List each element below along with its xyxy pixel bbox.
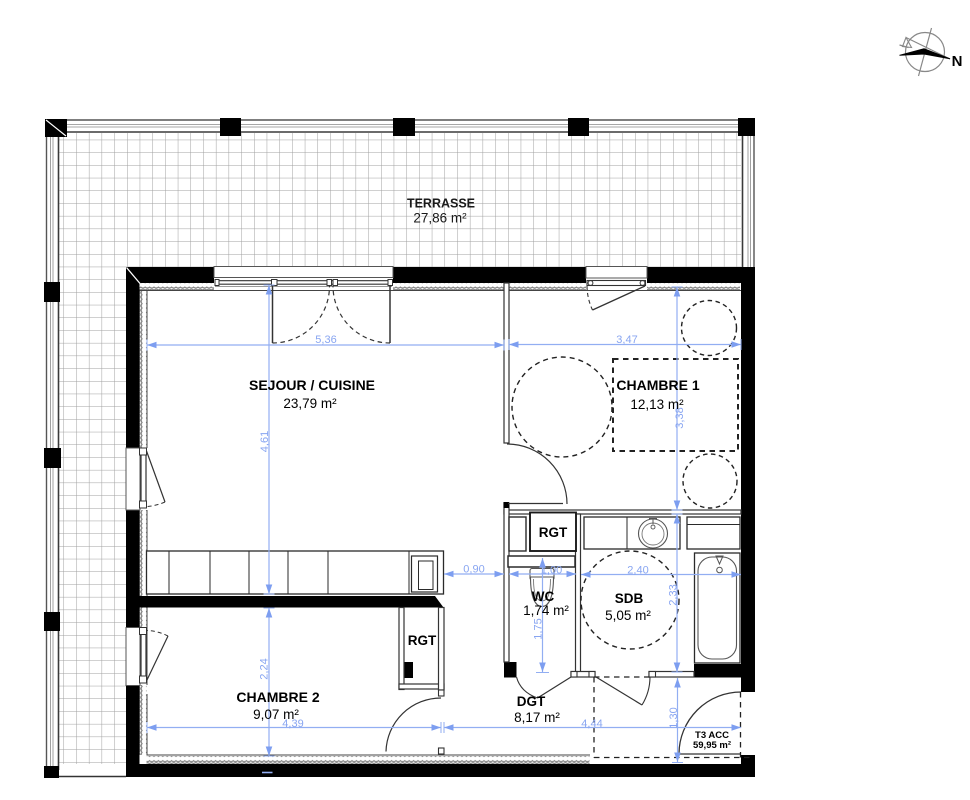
svg-text:SDB: SDB (615, 591, 644, 606)
svg-text:WC: WC (532, 589, 555, 604)
svg-text:2,33: 2,33 (668, 584, 680, 605)
svg-text:12,13 m²: 12,13 m² (630, 397, 684, 412)
svg-text:9,07 m²: 9,07 m² (253, 707, 299, 722)
svg-text:SEJOUR / CUISINE: SEJOUR / CUISINE (249, 377, 375, 393)
svg-text:59,95 m²: 59,95 m² (693, 740, 731, 751)
svg-text:27,86 m²: 27,86 m² (413, 211, 467, 226)
svg-text:2,24: 2,24 (259, 658, 271, 679)
svg-text:1,75: 1,75 (533, 618, 545, 639)
svg-text:CHAMBRE 2: CHAMBRE 2 (236, 689, 319, 705)
svg-text:RGT: RGT (539, 525, 568, 540)
svg-text:3,47: 3,47 (616, 334, 637, 346)
svg-text:4,61: 4,61 (259, 431, 271, 452)
svg-text:5,36: 5,36 (315, 334, 336, 346)
svg-text:N: N (952, 53, 963, 70)
svg-text:1,74 m²: 1,74 m² (523, 603, 569, 618)
svg-text:4,44: 4,44 (581, 718, 602, 730)
svg-text:TERRASSE: TERRASSE (407, 197, 475, 211)
svg-text:2,40: 2,40 (627, 565, 648, 577)
svg-text:5,05 m²: 5,05 m² (605, 608, 651, 623)
svg-text:CHAMBRE 1: CHAMBRE 1 (616, 377, 699, 393)
svg-text:0,90: 0,90 (463, 564, 484, 576)
svg-text:1,30: 1,30 (668, 707, 680, 728)
svg-text:8,17 m²: 8,17 m² (514, 710, 560, 725)
svg-text:RGT: RGT (408, 633, 437, 648)
svg-text:23,79 m²: 23,79 m² (283, 396, 337, 411)
svg-text:DGT: DGT (517, 694, 546, 709)
